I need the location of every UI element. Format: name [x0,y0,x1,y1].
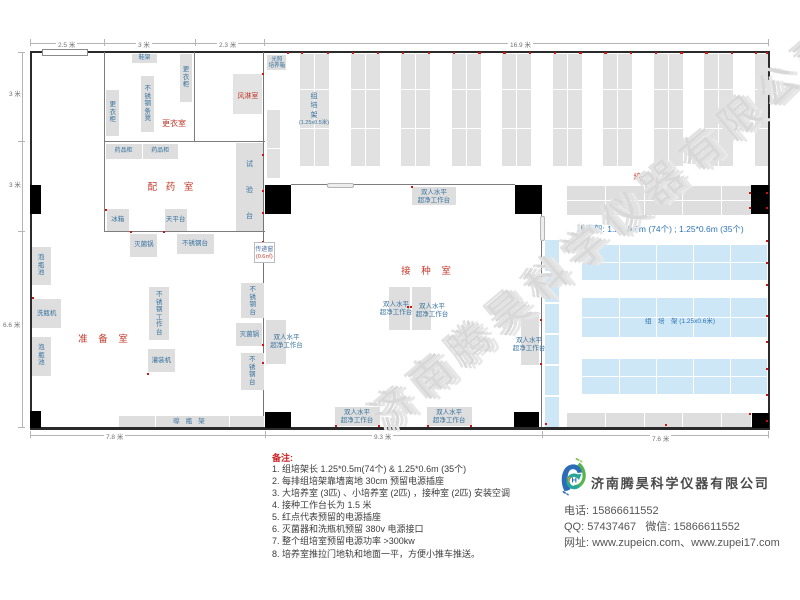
svg-text:H: H [572,476,577,485]
